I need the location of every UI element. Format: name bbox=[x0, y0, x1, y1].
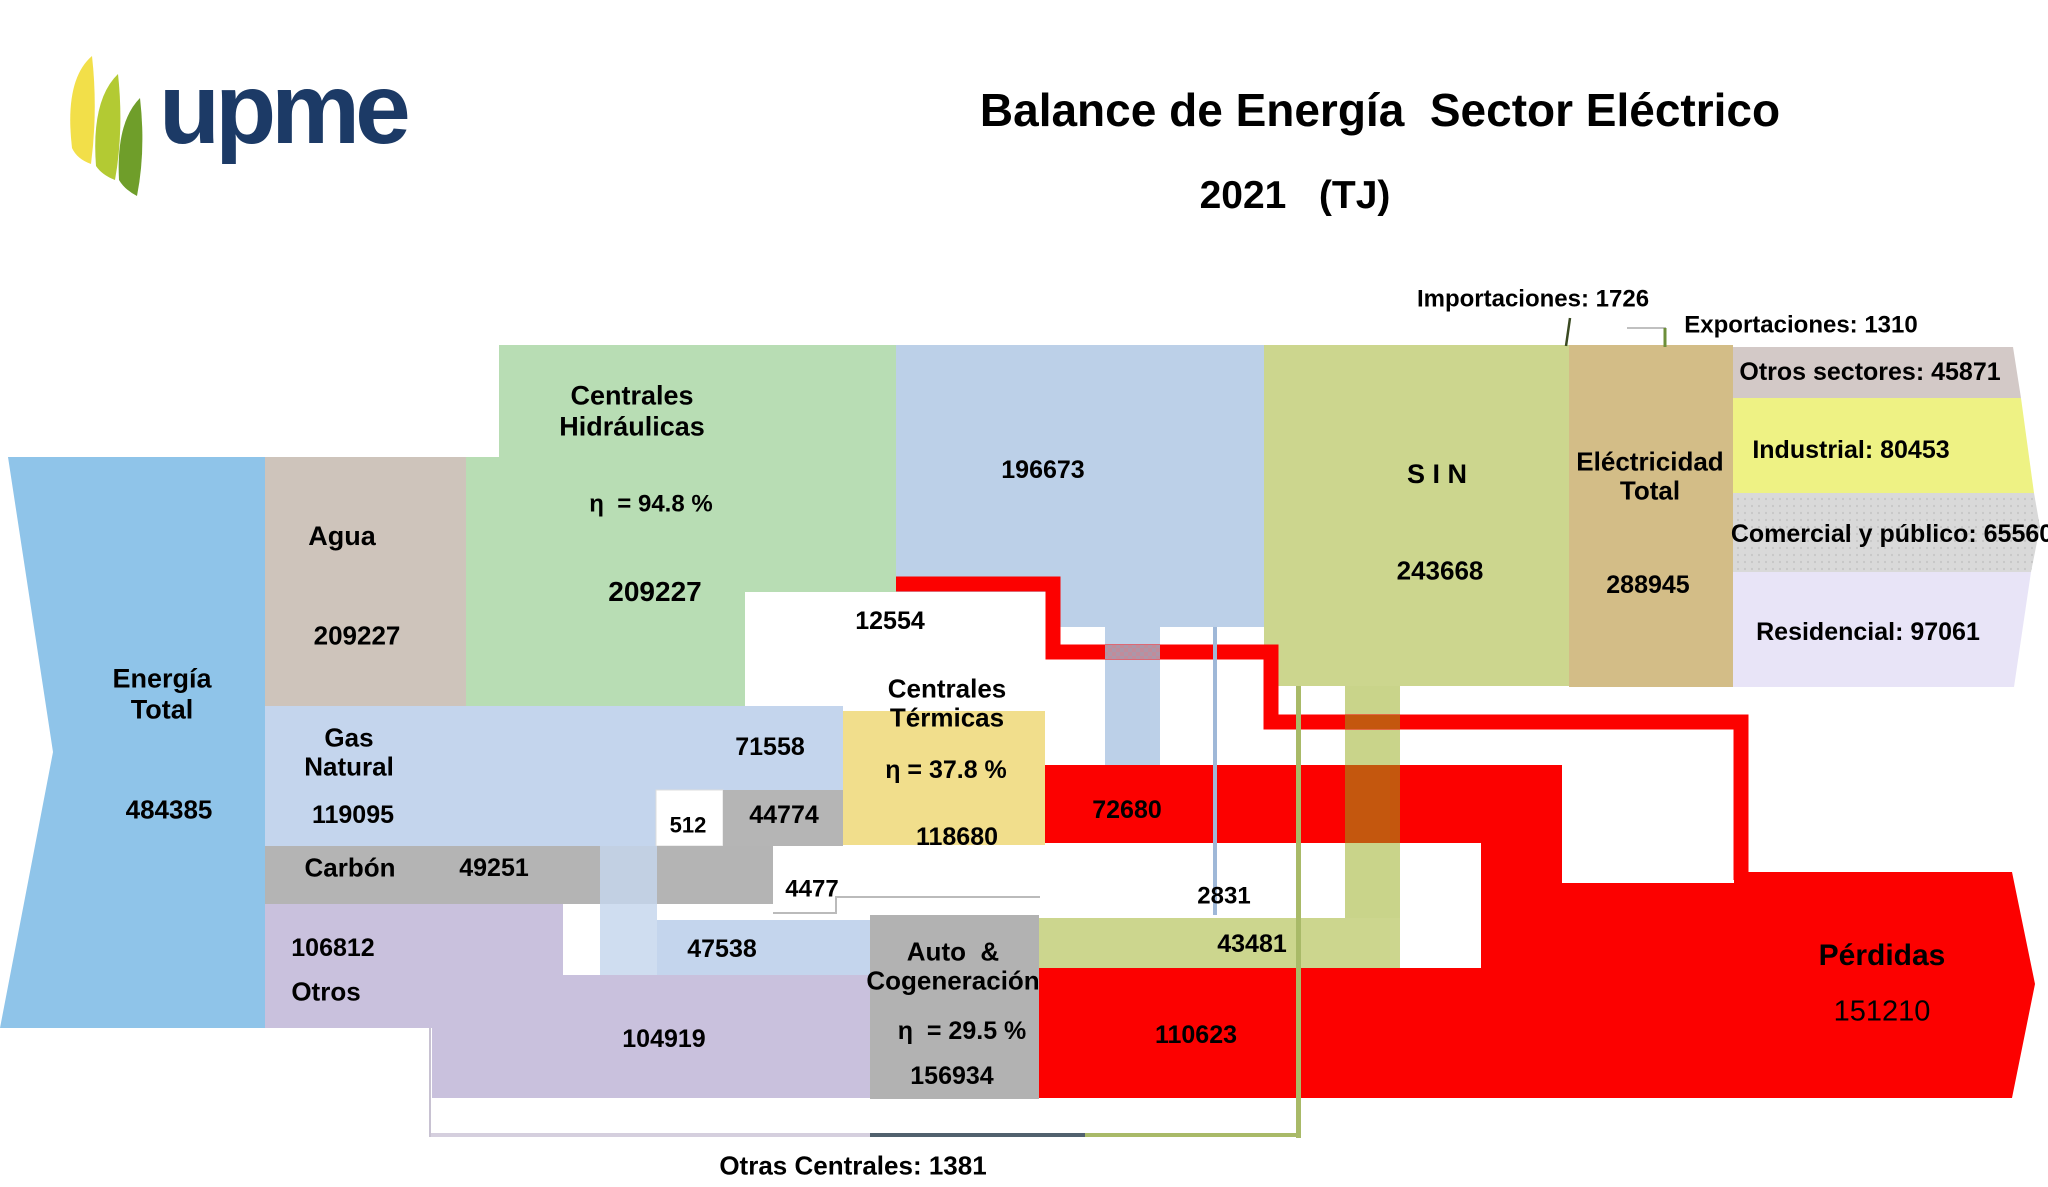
block-energia-total bbox=[0, 457, 265, 1028]
importaciones-label: Importaciones: 1726 bbox=[1417, 285, 1649, 312]
flow-110623-value: 110623 bbox=[1155, 1021, 1237, 1049]
column-gas-down bbox=[600, 846, 657, 975]
agua-value: 209227 bbox=[314, 621, 401, 650]
carbon-value: 49251 bbox=[459, 854, 529, 882]
gas-natural-value: 119095 bbox=[312, 801, 394, 829]
perdidas-value: 151210 bbox=[1834, 996, 1931, 1029]
sin-value: 243668 bbox=[1397, 556, 1484, 585]
cross-red-green-thin bbox=[1345, 715, 1400, 729]
flow-12554-value: 12554 bbox=[855, 607, 925, 635]
sector-residencial: Residencial: 97061 bbox=[1756, 618, 1980, 646]
page-title: Balance de Energía Sector Eléctrico bbox=[980, 85, 1780, 137]
block-sin bbox=[1264, 345, 1569, 686]
page-subtitle: 2021 (TJ) bbox=[1200, 174, 1391, 218]
upme-logo-leaves bbox=[58, 46, 153, 201]
leaf-yellow bbox=[70, 56, 95, 164]
sector-comercial: Comercial y público: 65560 bbox=[1731, 520, 2048, 548]
line-otras-centrales-vertical bbox=[1296, 686, 1301, 1138]
sin-label: S I N bbox=[1407, 459, 1467, 490]
flow-512-value: 512 bbox=[670, 814, 707, 839]
energia-total-value: 484385 bbox=[126, 795, 213, 824]
line-otras-centrales-h2 bbox=[870, 1133, 1085, 1137]
exportaciones-label: Exportaciones: 1310 bbox=[1684, 311, 1917, 338]
cross-red-blue-hatch bbox=[1105, 645, 1160, 659]
energy-balance-diagram: upme Balance de Energía Sector Eléctrico… bbox=[0, 0, 2048, 1187]
flow-104919-value: 104919 bbox=[622, 1025, 705, 1053]
auto-cogeneracion-label: Auto & Cogeneración bbox=[866, 938, 1039, 997]
flow-43481-value: 43481 bbox=[1217, 930, 1287, 958]
line-otras-centrales-h3 bbox=[1085, 1133, 1301, 1137]
energia-total-label: Energía Total bbox=[112, 664, 211, 725]
flow-196673-value: 196673 bbox=[1001, 456, 1084, 484]
carbon-label: Carbón bbox=[305, 853, 396, 882]
otros-value: 106812 bbox=[291, 934, 374, 962]
flow-47538-value: 47538 bbox=[687, 935, 757, 963]
termicas-label: Centrales Térmicas bbox=[888, 675, 1007, 734]
upme-wordmark: upme bbox=[159, 64, 406, 154]
sector-industrial: Industrial: 80453 bbox=[1752, 436, 1949, 464]
otros-label: Otros bbox=[291, 977, 360, 1006]
flow-4477-value: 4477 bbox=[785, 875, 838, 902]
hidraulicas-label: Centrales Hidráulicas bbox=[559, 381, 705, 442]
auto-cogeneracion-eta: η = 29.5 % bbox=[898, 1017, 1027, 1045]
line-otras-centrales-down bbox=[429, 1028, 431, 1137]
block-agua bbox=[265, 457, 466, 706]
hidraulicas-value: 209227 bbox=[608, 576, 701, 608]
block-electricidad-total bbox=[1569, 345, 1733, 687]
termicas-value: 118680 bbox=[916, 823, 998, 851]
electricidad-label: Eléctricidad Total bbox=[1576, 448, 1723, 507]
termicas-eta: η = 37.8 % bbox=[885, 756, 1007, 784]
line-otras-centrales-h1 bbox=[430, 1133, 870, 1137]
line-2831 bbox=[1213, 627, 1217, 915]
agua-label: Agua bbox=[308, 521, 376, 552]
flow-72680-value: 72680 bbox=[1092, 796, 1162, 824]
leaf-yellowgreen bbox=[95, 74, 120, 180]
electricidad-value: 288945 bbox=[1606, 571, 1689, 599]
perdidas-label: Pérdidas bbox=[1819, 939, 1946, 973]
cross-red-green-band bbox=[1345, 765, 1400, 843]
sector-otros-sectores: Otros sectores: 45871 bbox=[1739, 358, 2000, 386]
flow-2831-value: 2831 bbox=[1197, 882, 1250, 909]
gas-natural-label: Gas Natural bbox=[304, 724, 394, 783]
auto-cogeneracion-value: 156934 bbox=[910, 1062, 993, 1090]
flow-44774-value: 44774 bbox=[749, 801, 819, 829]
otras-centrales-label: Otras Centrales: 1381 bbox=[719, 1151, 986, 1180]
leader-importaciones bbox=[1566, 318, 1570, 346]
flow-71558-value: 71558 bbox=[735, 733, 805, 761]
upme-logo: upme bbox=[58, 46, 406, 201]
hidraulicas-eta: η = 94.8 % bbox=[589, 490, 712, 517]
leaf-green bbox=[119, 98, 143, 196]
